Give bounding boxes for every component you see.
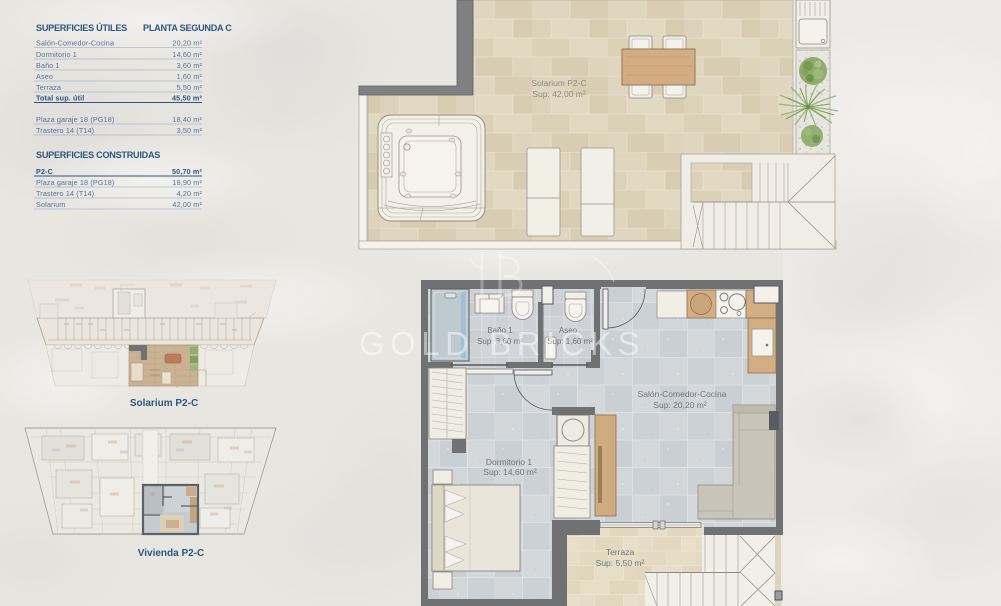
svg-text:3,60 m²: 3,60 m² [177, 61, 203, 70]
svg-text:Sup: 42,00 m²: Sup: 42,00 m² [532, 89, 586, 99]
svg-text:Sup: 14,60 m²: Sup: 14,60 m² [483, 467, 537, 477]
svg-text:Terraza: Terraza [606, 547, 635, 557]
svg-text:P2-C: P2-C [36, 167, 53, 176]
svg-text:Dormitorio 1: Dormitorio 1 [486, 457, 533, 467]
svg-text:Dormitorio 1: Dormitorio 1 [36, 50, 77, 59]
svg-text:14,60 m²: 14,60 m² [172, 50, 202, 59]
svg-text:18,90 m²: 18,90 m² [172, 178, 202, 187]
svg-text:5,50 m²: 5,50 m² [177, 83, 203, 92]
svg-text:Solarium: Solarium [36, 200, 66, 209]
svg-text:Salón-Comedor-Cocina: Salón-Comedor-Cocina [36, 39, 114, 48]
svg-text:45,50 m²: 45,50 m² [172, 94, 202, 103]
svg-text:3,50 m²: 3,50 m² [177, 126, 203, 135]
svg-text:GOLD BRICKS: GOLD BRICKS [359, 325, 645, 362]
svg-text:20,20 m²: 20,20 m² [172, 39, 202, 48]
svg-text:SUPERFICIES ÚTILES: SUPERFICIES ÚTILES [36, 22, 127, 33]
svg-text:Total sup. útil: Total sup. útil [36, 94, 84, 103]
svg-text:1,60 m²: 1,60 m² [177, 72, 203, 81]
svg-text:Salón-Comedor-Cocina: Salón-Comedor-Cocina [638, 389, 727, 399]
svg-text:Solarium P2-C: Solarium P2-C [130, 398, 198, 409]
svg-text:PLANTA SEGUNDA C: PLANTA SEGUNDA C [143, 23, 232, 33]
svg-text:SUPERFICIES CONSTRUIDAS: SUPERFICIES CONSTRUIDAS [36, 150, 160, 160]
svg-text:Sup: 20,20 m²: Sup: 20,20 m² [653, 400, 707, 410]
svg-text:Trastero 14 (T14): Trastero 14 (T14) [36, 126, 94, 135]
svg-text:Baño 1: Baño 1 [36, 61, 60, 70]
svg-text:Solarium P2-C: Solarium P2-C [531, 78, 586, 88]
svg-text:Sup: 5,50 m²: Sup: 5,50 m² [596, 558, 645, 568]
svg-text:42,00 m²: 42,00 m² [172, 200, 202, 209]
svg-text:4,20 m²: 4,20 m² [177, 189, 203, 198]
svg-text:18,40 m²: 18,40 m² [172, 115, 202, 124]
svg-text:Plaza garaje 18 (PG18): Plaza garaje 18 (PG18) [36, 178, 114, 187]
svg-text:Terraza: Terraza [36, 83, 61, 92]
svg-text:Plaza garaje 18 (PG18): Plaza garaje 18 (PG18) [36, 115, 114, 124]
svg-text:50,70 m²: 50,70 m² [172, 167, 202, 176]
svg-text:Aseo: Aseo [36, 72, 53, 81]
svg-text:Vivienda P2-C: Vivienda P2-C [138, 548, 205, 559]
svg-text:Trastero 14 (T14): Trastero 14 (T14) [36, 189, 94, 198]
